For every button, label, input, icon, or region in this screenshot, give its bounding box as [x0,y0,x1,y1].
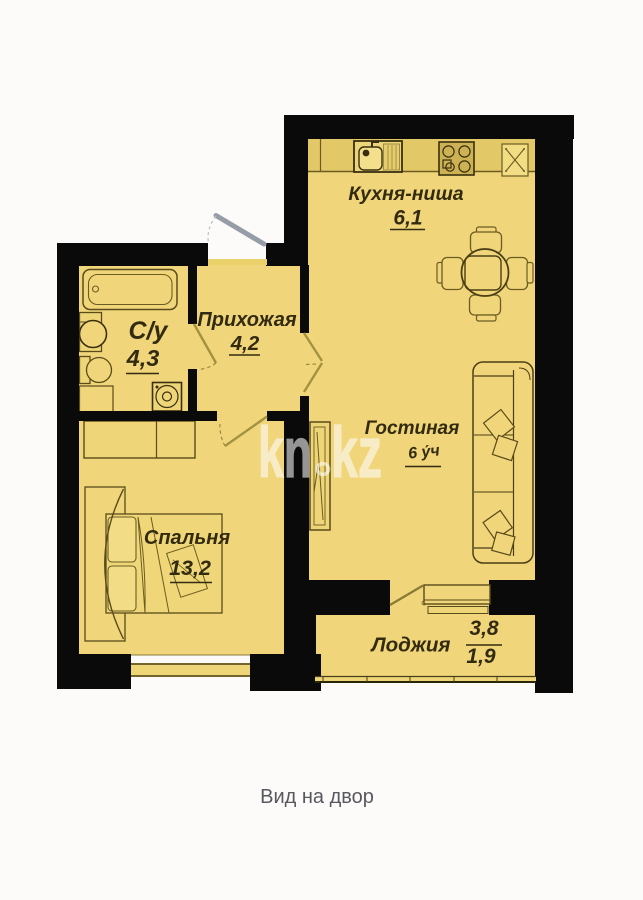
svg-text:Вид на двор: Вид на двор [260,786,374,808]
svg-text:kn: kn [258,414,312,493]
svg-text:6,1: 6,1 [393,207,422,230]
svg-text:Прихожая: Прихожая [197,309,296,331]
svg-text:kz: kz [331,414,382,493]
svg-text:Кухня-ниша: Кухня-ниша [348,183,463,205]
svg-text:Лоджия: Лоджия [370,634,451,657]
svg-text:1,9: 1,9 [466,645,496,668]
svg-text:С/у: С/у [129,317,169,345]
svg-text:Спальня: Спальня [144,527,230,549]
svg-text:3,8: 3,8 [469,617,499,640]
svg-text:4,3: 4,3 [126,345,160,371]
svg-text:13,2: 13,2 [169,556,211,580]
svg-text:4,2: 4,2 [230,332,260,355]
svg-text:6 у́ч: 6 у́ч [407,442,440,462]
